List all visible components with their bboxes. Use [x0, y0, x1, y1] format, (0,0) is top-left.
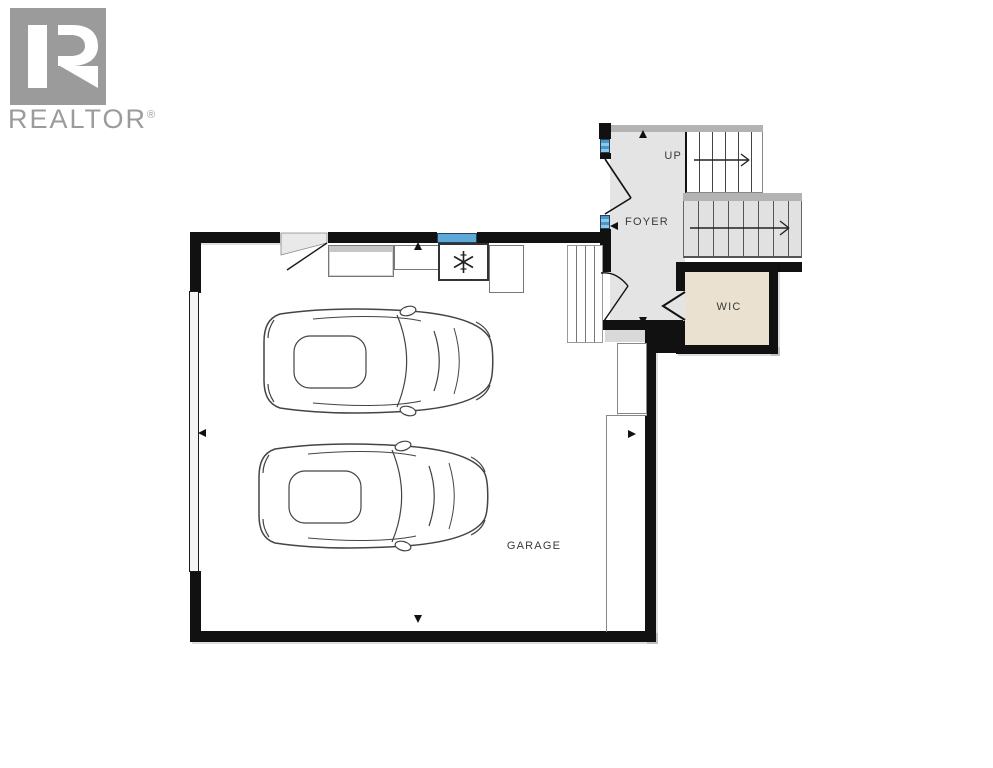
wic-top-wall [678, 262, 802, 272]
garage-bottom-wall [190, 631, 656, 642]
realtor-r-mark [10, 8, 106, 105]
garage-left-wall-upper [190, 232, 201, 293]
up-label: UP [652, 150, 682, 162]
utility-cabinet [489, 245, 524, 293]
wic-left-wall-lower [676, 321, 685, 354]
stair-top-cap [610, 125, 763, 132]
wic-right-wall [769, 262, 778, 354]
direction-arrow-up-icon [414, 242, 422, 250]
direction-arrow-up-icon [639, 130, 647, 138]
wic-label: WIC [697, 301, 761, 313]
garage-label: GARAGE [492, 540, 576, 552]
door-swing-icon [281, 233, 327, 270]
foyer-label: FOYER [610, 216, 684, 228]
stairs-upper-flight [685, 132, 763, 193]
direction-arrow-left-icon [198, 429, 206, 437]
garage-top-wall-left [190, 232, 280, 243]
workbench-top [329, 246, 393, 252]
car-top-view-icon [264, 305, 493, 418]
realtor-brand-text: REALTOR [8, 104, 147, 134]
garage-nook-outline [606, 415, 646, 632]
registered-mark: ® [147, 109, 155, 121]
wic-left-wall-upper [676, 262, 685, 291]
stairs-lower-flight [683, 201, 802, 258]
storage-closet [617, 343, 647, 416]
direction-arrow-down-icon [639, 317, 647, 325]
foyer-left-wall-seg1 [599, 123, 611, 139]
floorplan-page: REALTOR® UP FOYER WIC GARAGE [0, 0, 993, 768]
realtor-logo [10, 8, 106, 105]
car-top-view-icon [259, 440, 488, 553]
wic-bottom-wall [676, 345, 778, 354]
foyer-left-wall-seg2 [600, 153, 611, 159]
realtor-logo-text: REALTOR® [8, 104, 155, 135]
window-marker [600, 215, 610, 229]
direction-arrow-left-icon [610, 222, 618, 230]
garage-top-wall-right [477, 232, 600, 243]
freezer [438, 243, 489, 281]
direction-arrow-right-icon [628, 430, 636, 438]
stair-mid-cap [683, 193, 802, 201]
steps-to-foyer [567, 245, 603, 343]
window-marker [437, 233, 477, 243]
window-marker [600, 139, 610, 153]
direction-arrow-down-icon [414, 615, 422, 623]
workbench [328, 245, 394, 277]
